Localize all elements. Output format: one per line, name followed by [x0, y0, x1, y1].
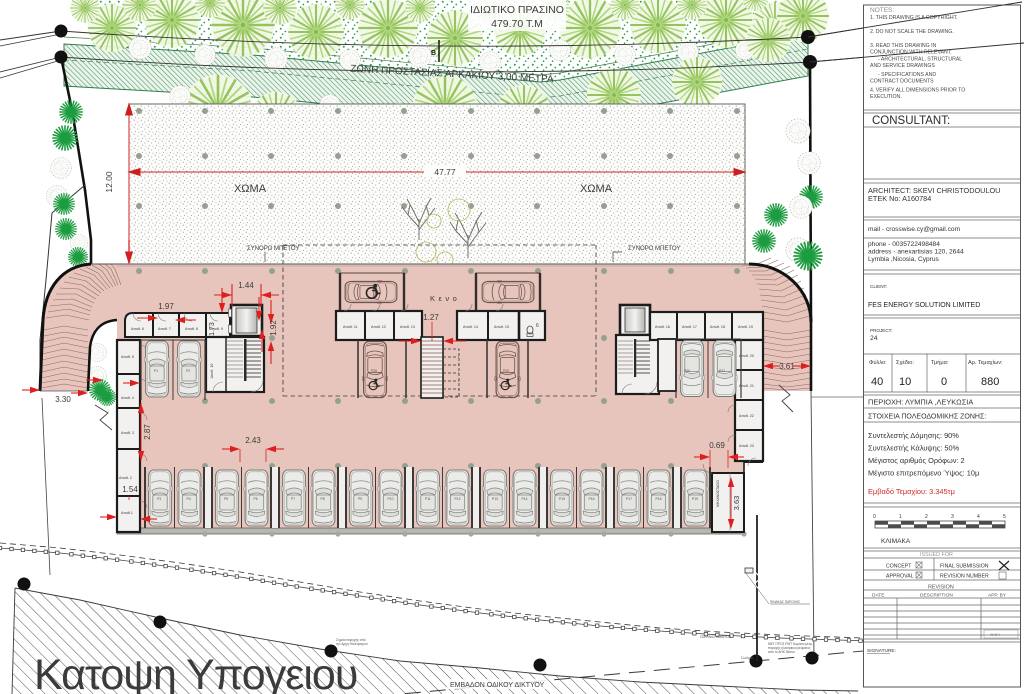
svg-text:ΧΩΜΑ: ΧΩΜΑ: [580, 183, 613, 195]
svg-text:3.30: 3.30: [55, 395, 71, 404]
svg-text:Αποθ. 17: Αποθ. 17: [682, 325, 697, 329]
svg-text:Αποθ. 18: Αποθ. 18: [710, 325, 725, 329]
svg-text:P19: P19: [692, 497, 698, 501]
svg-text:ΙΔΙΩΤΙΚΟ ΠΡΑΣΙΝΟ: ΙΔΙΩΤΙΚΟ ΠΡΑΣΙΝΟ: [470, 4, 564, 16]
svg-text:12.00: 12.00: [104, 171, 114, 193]
svg-text:P17: P17: [626, 497, 632, 501]
svg-text:P20: P20: [684, 369, 690, 373]
svg-text:P5: P5: [224, 497, 228, 501]
svg-text:P1: P1: [154, 369, 158, 373]
svg-text:Σωλήνας: Σωλήνας: [741, 656, 754, 660]
svg-text:P9: P9: [358, 497, 362, 501]
svg-text:3.63: 3.63: [732, 496, 741, 511]
svg-text:ΠΙΝΑΚΑΣ ΠΑΡΟΧΗΣ: ΠΙΝΑΚΑΣ ΠΑΡΟΧΗΣ: [770, 600, 800, 604]
svg-text:Αποθ. 5: Αποθ. 5: [121, 355, 134, 359]
svg-text:3: 3: [951, 514, 954, 520]
svg-text:Αποθ. 13: Αποθ. 13: [400, 325, 415, 329]
svg-text:ΣΤΟΙΧΕΙΑ ΠΟΛΕΟΔΟΜΙΚΗΣ ΖΟΝΗΣ:: ΣΤΟΙΧΕΙΑ ΠΟΛΕΟΔΟΜΙΚΗΣ ΖΟΝΗΣ:: [868, 414, 986, 421]
svg-text:880: 880: [981, 376, 999, 388]
svg-text:1.92: 1.92: [269, 320, 278, 336]
svg-text:0: 0: [873, 514, 876, 520]
svg-text:1.54: 1.54: [122, 485, 138, 494]
svg-text:Αποθ. 2: Αποθ. 2: [119, 476, 132, 480]
svg-text:Αποθ. 23: Αποθ. 23: [739, 444, 754, 448]
svg-text:P26: P26: [371, 369, 377, 373]
svg-text:FES ENERGY SOLUTION LIMITED: FES ENERGY SOLUTION LIMITED: [868, 302, 980, 309]
svg-text:Αποθ. 10: Αποθ. 10: [210, 364, 214, 379]
svg-text:FINAL SUBMISSION: FINAL SUBMISSION: [940, 564, 989, 570]
svg-text:47.77: 47.77: [434, 167, 456, 177]
svg-text:1.44: 1.44: [238, 281, 254, 290]
svg-text:P15: P15: [559, 497, 565, 501]
svg-text:4: 4: [977, 514, 980, 520]
svg-text:5: 5: [1003, 514, 1006, 520]
svg-text:P14: P14: [522, 497, 528, 501]
svg-text:ΚΛΙΜΑΚΑ: ΚΛΙΜΑΚΑ: [881, 538, 911, 545]
svg-text:P16: P16: [589, 497, 595, 501]
svg-text:EXECUTION.: EXECUTION.: [870, 94, 902, 100]
svg-text:ETEK No: A160784: ETEK No: A160784: [868, 194, 931, 203]
svg-text:P4: P4: [187, 497, 191, 501]
svg-text:Συντελεστής Κάλυψης: 50%: Συντελεστής Κάλυψης: 50%: [868, 444, 960, 453]
svg-text:DATE: DATE: [872, 593, 884, 599]
svg-text:Φύλλο:: Φύλλο:: [869, 360, 887, 366]
svg-text:6: 6: [536, 323, 539, 329]
svg-text:B: B: [431, 50, 436, 57]
svg-text:P11: P11: [425, 497, 431, 501]
svg-text:Τμήμα:: Τμήμα:: [931, 359, 949, 366]
svg-text:Μέγιστο επιτρεπόμενο Ύψος: 10μ: Μέγιστο επιτρεπόμενο Ύψος: 10μ: [868, 469, 979, 478]
svg-text:P8: P8: [321, 497, 325, 501]
svg-text:3.61: 3.61: [779, 362, 795, 371]
svg-text:CONCEPT: CONCEPT: [886, 564, 912, 570]
svg-text:ΑΚΚΗ: ΑΚΚΗ: [990, 633, 1000, 637]
svg-text:Αποθ. 3: Αποθ. 3: [121, 431, 134, 435]
svg-text:2: 2: [925, 514, 928, 520]
svg-text:Lymbia ,Nicosia, Cyprus: Lymbia ,Nicosia, Cyprus: [868, 256, 940, 263]
svg-text:P2: P2: [186, 369, 190, 373]
svg-text:479.70 Τ.Μ: 479.70 Τ.Μ: [491, 18, 543, 30]
svg-text:Αποθ. 14: Αποθ. 14: [463, 325, 478, 329]
svg-text:2.43: 2.43: [245, 436, 261, 445]
svg-text:P7: P7: [291, 497, 295, 501]
svg-text:Αποθ.1: Αποθ.1: [121, 511, 133, 515]
svg-text:P10: P10: [388, 497, 394, 501]
svg-text:Σχέδιο:: Σχέδιο:: [896, 359, 914, 366]
svg-text:Αποθ. 6: Αποθ. 6: [131, 327, 144, 331]
svg-text:Αποθ. 22: Αποθ. 22: [739, 414, 754, 418]
svg-text:APP. BY: APP. BY: [988, 593, 1007, 599]
svg-text:Αποθ. 7: Αποθ. 7: [158, 327, 171, 331]
svg-text:2.87: 2.87: [143, 424, 152, 440]
svg-text:Αρ. Τεμαχίων:: Αρ. Τεμαχίων:: [968, 360, 1003, 366]
svg-text:0.69: 0.69: [709, 441, 725, 450]
svg-text:Κενο: Κενο: [430, 294, 460, 303]
svg-text:Αποθ. 8: Αποθ. 8: [185, 327, 198, 331]
svg-text:Εμβαδό Τεμαχίου: 3.345τμ: Εμβαδό Τεμαχίου: 3.345τμ: [868, 487, 955, 496]
svg-text:P25: P25: [503, 369, 509, 373]
svg-text:Αποθ. 4: Αποθ. 4: [121, 396, 134, 400]
svg-text:P21: P21: [719, 369, 725, 373]
svg-text:Αποθ. 11: Αποθ. 11: [343, 325, 358, 329]
svg-text:1.73: 1.73: [209, 322, 216, 336]
svg-text:ΠΕΡΙΟΧΗ: ΛΥΜΠΙΑ ,ΛΕΥΚΩΣΙΑ: ΠΕΡΙΟΧΗ: ΛΥΜΠΙΑ ,ΛΕΥΚΩΣΙΑ: [868, 398, 973, 407]
svg-text:NOTES:: NOTES:: [870, 7, 894, 14]
svg-text:mail - crosswise.cy@gmail.com: mail - crosswise.cy@gmail.com: [868, 226, 961, 233]
svg-text:από το ΑΗΚ δίκτυο: από το ΑΗΚ δίκτυο: [768, 650, 795, 654]
svg-text:ΜΗΧΑΝΟΣΤΑΣΙΟ: ΜΗΧΑΝΟΣΤΑΣΙΟ: [716, 480, 720, 507]
svg-text:Αποθ. 12: Αποθ. 12: [371, 325, 386, 329]
svg-text:ΣΥΝΟΡΟ ΜΠΕΤΟΥ: ΣΥΝΟΡΟ ΜΠΕΤΟΥ: [628, 246, 680, 252]
svg-text:10: 10: [899, 376, 911, 388]
svg-text:P18: P18: [656, 497, 662, 501]
svg-text:address - anexartisias 120, 26: address - anexartisias 120, 2644: [868, 249, 964, 256]
svg-text:ΕΜΒΑΔΟΝ ΟΔΙΚΟΥ ΔΙΚΤΥΟΥ: ΕΜΒΑΔΟΝ ΟΔΙΚΟΥ ΔΙΚΤΥΟΥ: [450, 682, 545, 689]
svg-text:3. READ THIS DRAWING IN: 3. READ THIS DRAWING IN: [870, 43, 937, 49]
svg-text:Μέγιστος αριθμός Ορόφων: 2: Μέγιστος αριθμός Ορόφων: 2: [868, 456, 965, 465]
svg-text:0: 0: [941, 376, 947, 388]
svg-text:CONTRACT DOCUMENTS: CONTRACT DOCUMENTS: [870, 79, 934, 85]
svg-text:P12: P12: [455, 497, 461, 501]
svg-text:AND SERVICE DRAWINGS: AND SERVICE DRAWINGS: [870, 63, 935, 69]
svg-text:1: 1: [899, 514, 902, 520]
svg-text:PROJECT:: PROJECT:: [870, 328, 892, 333]
svg-text:40: 40: [871, 376, 883, 388]
svg-text:4. VERIFY ALL DIMENSIONS PRIOR: 4. VERIFY ALL DIMENSIONS PRIOR TO: [870, 88, 965, 94]
svg-text:APPROVAL: APPROVAL: [886, 574, 914, 580]
svg-text:Συντελεστής Δόμησης: 90%: Συντελεστής Δόμησης: 90%: [868, 431, 959, 440]
svg-text:24: 24: [870, 335, 878, 342]
svg-text:την Αρχή Ηλεκτρισμού: την Αρχή Ηλεκτρισμού: [336, 642, 368, 646]
svg-text:1.27: 1.27: [423, 313, 439, 322]
svg-text:Αποθ. 16: Αποθ. 16: [655, 325, 670, 329]
svg-text:Κατοψη Υπογειου: Κατοψη Υπογειου: [34, 651, 357, 694]
svg-text:CONSULTANT:: CONSULTANT:: [872, 115, 950, 127]
svg-text:P6: P6: [254, 497, 258, 501]
svg-text:P3: P3: [157, 497, 161, 501]
svg-text:ΧΩΜΑ: ΧΩΜΑ: [234, 183, 267, 195]
svg-text:DESCRIPTION: DESCRIPTION: [920, 593, 953, 599]
svg-text:1.97: 1.97: [158, 302, 174, 311]
svg-text:- ARCHITECTURAL, STRUCTURAL: - ARCHITECTURAL, STRUCTURAL: [878, 57, 962, 63]
svg-text:P13: P13: [492, 497, 498, 501]
svg-text:CLIENT:: CLIENT:: [870, 284, 887, 289]
svg-text:phone - 0035722498484: phone - 0035722498484: [868, 241, 940, 248]
svg-text:SIGNATURE:: SIGNATURE:: [867, 648, 896, 654]
svg-text:REVISION NUMBER: REVISION NUMBER: [940, 574, 989, 580]
svg-text:- SPECIFICATIONS AND: - SPECIFICATIONS AND: [878, 72, 936, 78]
svg-text:Αποθ. 15: Αποθ. 15: [494, 325, 509, 329]
svg-text:ΣΩΛΗΝΑΣ ΟΜΒΡΙΩΝ: ΣΩΛΗΝΑΣ ΟΜΒΡΙΩΝ: [700, 635, 732, 639]
svg-text:Αποθ. 19: Αποθ. 19: [738, 325, 753, 329]
svg-text:ΣΥΝΟΡΟ ΜΠΕΤΟΥ: ΣΥΝΟΡΟ ΜΠΕΤΟΥ: [247, 246, 299, 252]
svg-text:2. DO NOT SCALE THE DRAWING.: 2. DO NOT SCALE THE DRAWING.: [870, 29, 954, 35]
svg-text:ISSUED FOR: ISSUED FOR: [920, 552, 953, 558]
svg-text:REVISION: REVISION: [928, 585, 954, 591]
